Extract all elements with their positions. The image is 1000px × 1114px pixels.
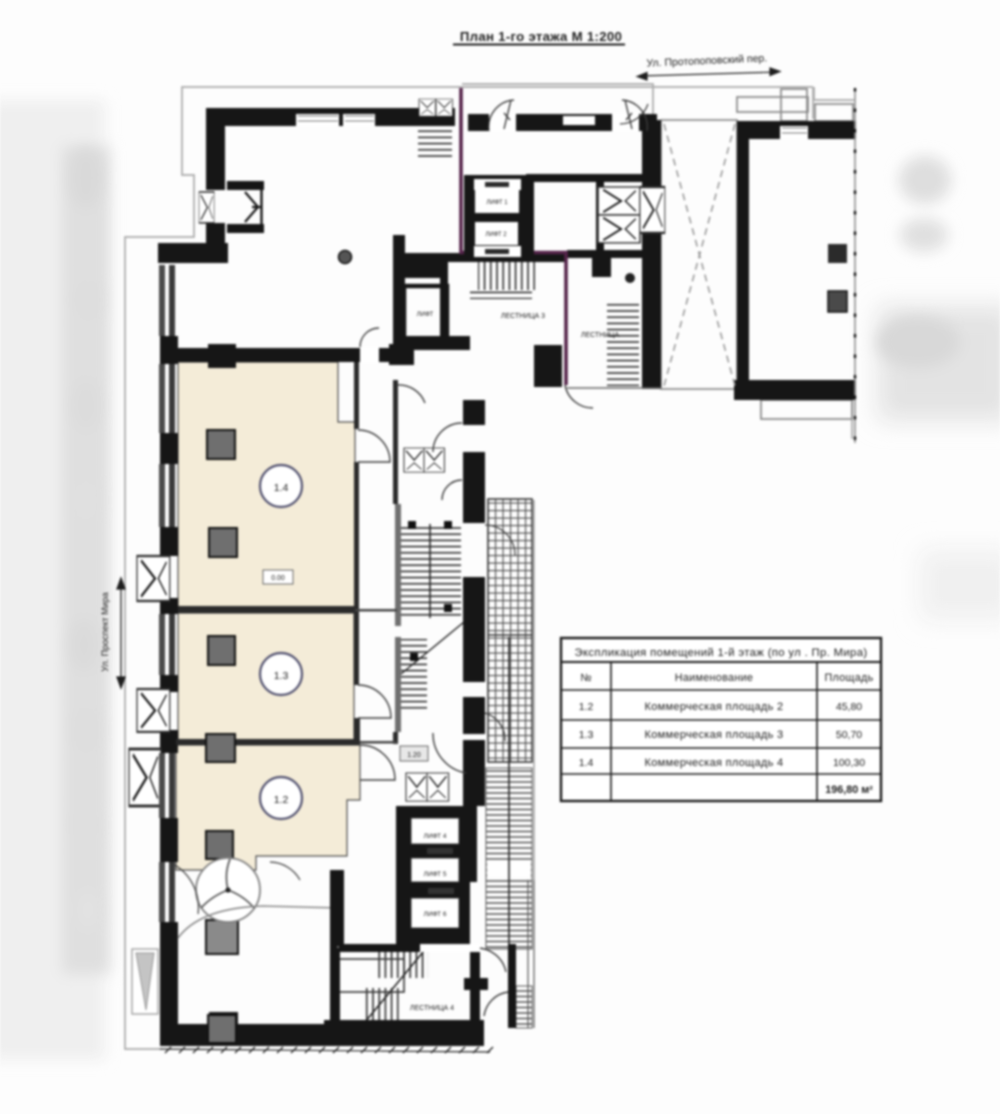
svg-text:1.3: 1.3 [274,670,289,682]
svg-text:196,80 м²: 196,80 м² [825,784,873,796]
svg-text:1.2: 1.2 [274,794,289,806]
svg-text:ЛИФТ 1: ЛИФТ 1 [486,200,508,206]
svg-text:50,70: 50,70 [836,729,862,741]
svg-text:ЛИФТ 6: ЛИФТ 6 [424,911,447,918]
svg-text:Площадь: Площадь [824,672,873,684]
svg-text:1.20: 1.20 [407,752,421,759]
svg-text:1.4: 1.4 [579,757,594,769]
svg-text:1.4: 1.4 [274,482,289,494]
svg-text:45,80: 45,80 [836,701,862,713]
svg-text:ЛЕСТНИЦА: ЛЕСТНИЦА [581,332,620,339]
svg-text:План 1-го этажа М 1:200: План 1-го этажа М 1:200 [460,29,622,44]
svg-text:Коммерческая площадь 2: Коммерческая площадь 2 [645,701,784,713]
svg-text:Экспликация помещений 1-й эта: Экспликация помещений 1-й этаж (по ул . … [575,647,868,659]
svg-text:ЛЕСТНИЦА 4: ЛЕСТНИЦА 4 [410,1005,454,1012]
svg-text:0.00: 0.00 [271,575,285,582]
svg-text:ЛИФТ: ЛИФТ [417,311,434,318]
svg-text:Наименование: Наименование [675,672,753,684]
svg-text:1.2: 1.2 [579,701,594,713]
svg-text:Коммерческая площадь 4: Коммерческая площадь 4 [645,757,784,769]
svg-text:100,30: 100,30 [833,757,865,769]
svg-text:1.3: 1.3 [579,729,594,741]
svg-text:ЛИФТ 5: ЛИФТ 5 [424,871,447,878]
svg-text:ЛИФТ 4: ЛИФТ 4 [424,833,447,840]
svg-text:Коммерческая площадь 3: Коммерческая площадь 3 [645,729,784,741]
svg-text:Ул. Проспект Мира: Ул. Проспект Мира [100,592,110,671]
svg-text:ЛИФТ 2: ЛИФТ 2 [485,232,507,238]
svg-text:№: № [580,672,591,684]
svg-text:ЛЕСТНИЦА 3: ЛЕСТНИЦА 3 [501,313,545,320]
svg-text:Ул. Протопоповский пер.: Ул. Протопоповский пер. [646,52,767,69]
